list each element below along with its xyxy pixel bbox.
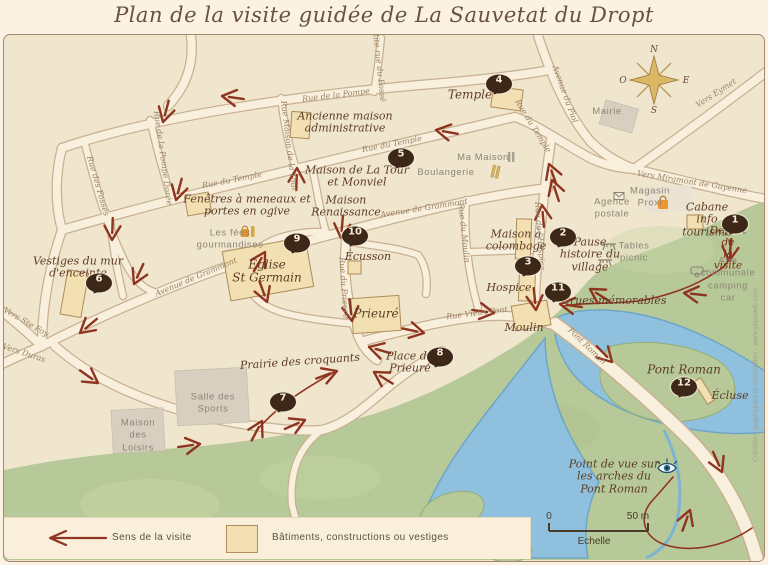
scale-label: Echelle [578, 536, 611, 547]
poi-label: Prieuré [353, 307, 398, 320]
stop-marker[interactable]: 2 [550, 228, 576, 247]
compass-rose-icon [630, 56, 678, 104]
scale-end: 50 m [627, 511, 649, 522]
info-label: Maison des Loisirs [121, 417, 155, 454]
stop-marker[interactable]: 4 [486, 75, 512, 94]
stop-marker[interactable]: 11 [545, 283, 571, 302]
scale-start: 0 [546, 511, 552, 522]
stop-marker[interactable]: 12 [671, 378, 697, 397]
info-label: Salle des Sports [191, 392, 235, 417]
poi-label: Crues mémorables [562, 295, 667, 307]
page-title: Plan de la visite guidée de La Sauvetat … [0, 3, 768, 27]
poi-label: Moulin [504, 322, 543, 334]
stop-marker[interactable]: 7 [270, 393, 296, 412]
stop-marker[interactable]: 10 [342, 227, 368, 246]
info-label: Agence postale [594, 197, 630, 222]
stop-marker[interactable]: 9 [284, 234, 310, 253]
info-label: Boulangerie [417, 167, 474, 179]
poi-label: Maison Renaissance [311, 195, 381, 220]
compass-west-label: O [619, 76, 626, 86]
poi-label: Pont Roman [647, 363, 721, 376]
stop-marker[interactable]: 8 [427, 348, 453, 367]
legend: Sens de la visite Bâtiments, constructio… [4, 517, 531, 559]
poi-label: Fenêtres à meneaux et portes en ogive [183, 194, 310, 219]
info-label: Magasin Proxi [630, 186, 670, 211]
credits: Créations graphiques et conception - www… [753, 288, 760, 462]
legend-building-label: Bâtiments, constructions ou vestiges [272, 532, 449, 543]
poi-label: Hospice [486, 282, 531, 294]
info-label: Ma Maison [457, 152, 509, 164]
info-label: Les fées gourmandises [197, 228, 264, 253]
legend-route-label: Sens de la visite [112, 532, 192, 543]
tour-map-page: Plan de la visite guidée de La Sauvetat … [0, 0, 768, 565]
stop-marker[interactable]: 3 [515, 257, 541, 276]
house-icon [508, 152, 514, 162]
route-arrow-icon [40, 530, 110, 546]
poi-label: Église St Germain [232, 259, 301, 286]
stop-marker[interactable]: 5 [388, 149, 414, 168]
compass-north-label: N [650, 45, 658, 55]
poi-label: Écluse [712, 390, 749, 402]
bread-icon [491, 165, 500, 178]
poi-label: Ancienne maison administrative [297, 111, 392, 136]
stop-marker[interactable]: 6 [86, 274, 112, 293]
stop-marker[interactable]: 1 [722, 215, 748, 234]
poi-label: Maison à colombage [486, 229, 547, 254]
info-label: Mairie [592, 106, 621, 118]
poi-label: Temple [448, 88, 492, 101]
compass-south-label: S [651, 106, 657, 116]
compass-east-label: E [683, 76, 690, 86]
building-swatch-icon [226, 525, 258, 553]
map-canvas: Rue de la PompePetite rue du FosséRue du… [3, 34, 765, 562]
poi-label: Point de vue sur les arches du Pont Roma… [569, 459, 659, 496]
info-label: Tables picnic [618, 241, 649, 266]
